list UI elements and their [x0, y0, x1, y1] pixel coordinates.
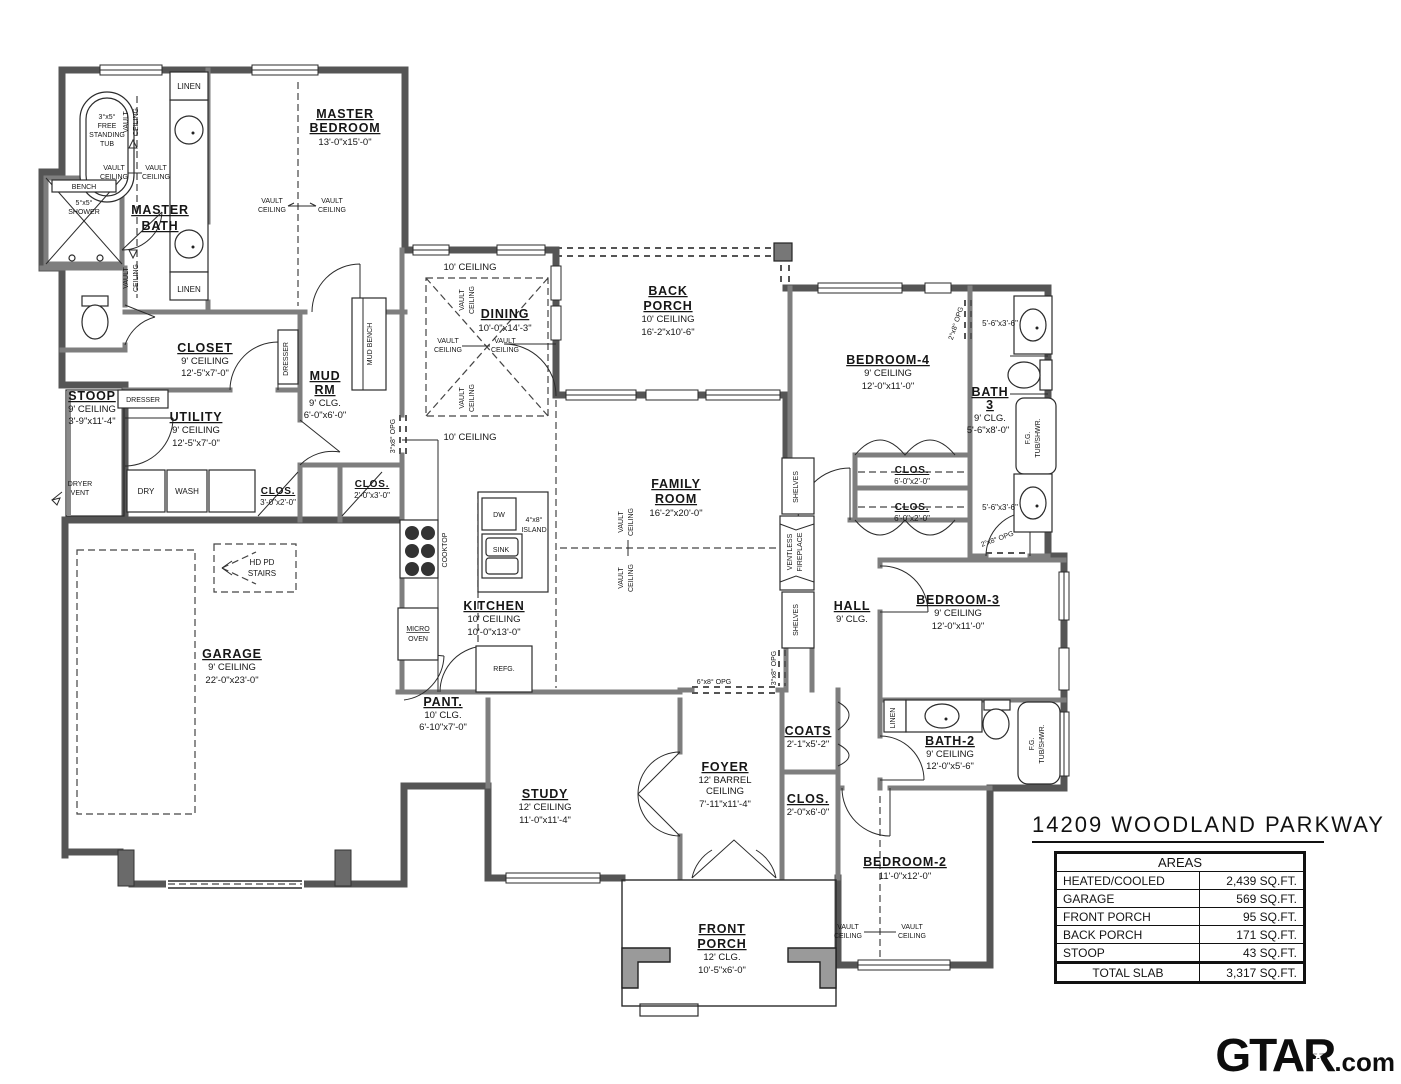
label-master-bath: MASTER	[131, 203, 189, 217]
svg-text:VAULT: VAULT	[123, 111, 130, 133]
svg-text:CEILING: CEILING	[133, 108, 140, 136]
area-value: 171 SQ.FT.	[1199, 926, 1304, 944]
micro-label: MICRO	[406, 626, 430, 633]
vault-label-dining: VAULT CEILING VAULT CEILING VAULT CEILIN…	[434, 286, 519, 412]
svg-text:OVEN: OVEN	[408, 636, 428, 643]
linen-label-bottom: LINEN	[177, 285, 201, 294]
svg-text:12'-0"x5'-6": 12'-0"x5'-6"	[926, 761, 974, 772]
svg-text:VAULT: VAULT	[145, 165, 167, 172]
svg-text:CEILING: CEILING	[258, 207, 286, 214]
svg-text:3'-0"x2'-0": 3'-0"x2'-0"	[260, 498, 296, 507]
svg-text:CEILING: CEILING	[434, 347, 462, 354]
floor-plan-page: MASTER BEDROOM 13'-0"x15'-0" MASTER BATH…	[0, 0, 1401, 1084]
label-bath2: BATH-2	[925, 734, 975, 748]
svg-text:16'-2"x20'-0": 16'-2"x20'-0"	[649, 508, 702, 519]
table-row: FRONT PORCH 95 SQ.FT.	[1056, 908, 1305, 926]
svg-text:12'-5"x7'-0": 12'-5"x7'-0"	[181, 368, 229, 379]
svg-text:9' CEILING: 9' CEILING	[68, 404, 116, 415]
table-row: STOOP 43 SQ.FT.	[1056, 944, 1305, 963]
vault-label-bedroom2: VAULT CEILING VAULT CEILING	[834, 924, 926, 940]
title-block: 14209 WOODLAND PARKWAY AREAS HEATED/COOL…	[1032, 812, 1324, 984]
plan-title: 14209 WOODLAND PARKWAY	[1032, 812, 1324, 843]
svg-text:CEILING: CEILING	[491, 347, 519, 354]
svg-text:9' CEILING: 9' CEILING	[181, 356, 229, 367]
label-coats: COATS	[785, 724, 832, 738]
svg-text:VAULT: VAULT	[618, 511, 625, 533]
svg-text:VAULT: VAULT	[261, 198, 283, 205]
stairs-label: HD PD	[250, 558, 275, 567]
star-icon: ★	[1312, 1048, 1324, 1064]
svg-text:CEILING: CEILING	[628, 564, 635, 592]
svg-text:CEILING: CEILING	[469, 286, 476, 314]
areas-header: AREAS	[1056, 853, 1305, 872]
total-value: 3,317 SQ.FT.	[1199, 963, 1304, 983]
dresser-label-horiz: DRESSER	[126, 397, 160, 404]
label-clos-bed4b: CLOS.	[895, 502, 930, 513]
svg-text:BEDROOM: BEDROOM	[310, 121, 381, 135]
dresser-label-vert: DRESSER	[283, 342, 290, 376]
area-value: 569 SQ.FT.	[1199, 890, 1304, 908]
svg-text:2'-1"x5'-2": 2'-1"x5'-2"	[787, 739, 830, 750]
area-value: 2,439 SQ.FT.	[1199, 872, 1304, 890]
svg-text:PORCH: PORCH	[697, 937, 746, 951]
bath3-fixtures	[1008, 296, 1056, 532]
svg-text:FIREPLACE: FIREPLACE	[797, 532, 804, 571]
svg-text:STANDING: STANDING	[89, 132, 125, 139]
svg-text:9' CEILING: 9' CEILING	[172, 425, 220, 436]
svg-text:VENT: VENT	[71, 490, 90, 497]
opg-2x8-bottom: 2°x8° OPG	[980, 529, 1015, 548]
toilet-master	[82, 296, 108, 339]
svg-text:9' CEILING: 9' CEILING	[934, 608, 982, 619]
svg-text:VAULT: VAULT	[321, 198, 343, 205]
svg-text:2'-0"x3'-0": 2'-0"x3'-0"	[354, 491, 390, 500]
fireplace-label: VENTLESS	[787, 533, 794, 570]
total-label: TOTAL SLAB	[1056, 963, 1200, 983]
svg-text:VAULT: VAULT	[618, 567, 625, 589]
tub-size-label: 3°x5°	[99, 113, 116, 121]
svg-text:VAULT: VAULT	[437, 338, 459, 345]
porch-pillar-right	[788, 948, 836, 988]
kitchen-fixtures	[398, 440, 548, 692]
island-label: 4°x8°	[526, 516, 543, 524]
svg-text:TUB: TUB	[100, 141, 114, 148]
label-hall: HALL	[834, 599, 871, 613]
svg-text:9' CEILING: 9' CEILING	[926, 749, 974, 760]
svg-text:9' CEILING: 9' CEILING	[208, 662, 256, 673]
svg-text:16'-2"x10'-6": 16'-2"x10'-6"	[641, 327, 694, 338]
svg-text:ROOM: ROOM	[655, 492, 697, 506]
label-front-porch: FRONT	[698, 922, 745, 936]
svg-text:PORCH: PORCH	[643, 299, 692, 313]
svg-text:VAULT: VAULT	[103, 165, 125, 172]
svg-text:3'-9"x11'-4": 3'-9"x11'-4"	[68, 416, 115, 427]
gtar-logo-suffix: .com	[1334, 1047, 1395, 1077]
label-study: STUDY	[522, 787, 568, 801]
svg-text:2'-0"x6'-0": 2'-0"x6'-0"	[787, 807, 830, 818]
ceiling10-label-b: 10' CEILING	[443, 432, 496, 443]
label-clos-foyer: CLOS.	[787, 792, 829, 806]
linen-label-top: LINEN	[177, 82, 201, 91]
svg-text:10'-5"x6'-0": 10'-5"x6'-0"	[698, 965, 746, 976]
svg-text:10' CLG.: 10' CLG.	[424, 710, 461, 721]
dw-label: DW	[493, 512, 505, 519]
opg-3x8-mud: 3°x8° OPG	[389, 419, 397, 453]
svg-text:10' CEILING: 10' CEILING	[641, 314, 694, 325]
area-label: GARAGE	[1056, 890, 1200, 908]
label-family-room: FAMILY	[651, 477, 700, 491]
svg-text:12'-5"x7'-0": 12'-5"x7'-0"	[172, 438, 220, 449]
svg-text:CEILING: CEILING	[469, 384, 476, 412]
svg-text:STAIRS: STAIRS	[248, 569, 276, 578]
ceiling10-label-a: 10' CEILING	[443, 262, 496, 273]
svg-text:VAULT: VAULT	[459, 387, 466, 409]
wash-label: WASH	[175, 487, 199, 496]
svg-text:CEILING: CEILING	[706, 786, 744, 797]
svg-text:9' CLG.: 9' CLG.	[836, 614, 868, 625]
porch-pillar-left	[622, 948, 670, 988]
svg-text:5'-6"x8'-0": 5'-6"x8'-0"	[967, 425, 1010, 436]
label-back-porch: BACK	[648, 284, 687, 298]
svg-text:7'-11"x11'-4": 7'-11"x11'-4"	[699, 799, 751, 810]
label-garage: GARAGE	[202, 647, 262, 661]
svg-text:CEILING: CEILING	[100, 174, 128, 181]
svg-text:12'-0"x11'-0": 12'-0"x11'-0"	[862, 381, 914, 392]
label-bedroom4: BEDROOM-4	[846, 353, 930, 367]
linen-label-bath2: LINEN	[890, 708, 897, 729]
svg-text:13'-0"x15'-0": 13'-0"x15'-0"	[318, 137, 371, 148]
svg-text:CEILING: CEILING	[133, 264, 140, 292]
label-stoop: STOOP	[68, 389, 116, 403]
opg-2x8-top: 2°x8° OPG	[947, 306, 965, 341]
svg-text:VAULT: VAULT	[123, 267, 130, 289]
mud-bench-label: MUD BENCH	[367, 323, 374, 365]
label-clos-mud: CLOS.	[355, 479, 390, 490]
svg-text:VAULT: VAULT	[837, 924, 859, 931]
porch-post	[774, 243, 792, 261]
vanity-dims-bottom: 5'-6"x3'-6"	[982, 503, 1018, 512]
opg-3x8-hall: 3°x8° OPG	[770, 651, 778, 685]
svg-text:12' BARREL: 12' BARREL	[698, 775, 751, 786]
svg-text:3: 3	[986, 398, 994, 412]
label-mud-rm: MUD	[310, 369, 341, 383]
svg-text:6'-0"x2'-0": 6'-0"x2'-0"	[894, 477, 930, 486]
area-label: BACK PORCH	[1056, 926, 1200, 944]
svg-text:11'-0"x12'-0": 11'-0"x12'-0"	[879, 871, 931, 882]
svg-text:ISLAND: ISLAND	[521, 527, 546, 534]
svg-text:12'-0"x11'-0": 12'-0"x11'-0"	[932, 621, 984, 632]
shelves-label-lower: SHELVES	[793, 604, 800, 636]
dry-label: DRY	[138, 487, 155, 496]
label-clos-utility: CLOS.	[261, 486, 296, 497]
table-row: GARAGE 569 SQ.FT.	[1056, 890, 1305, 908]
master-vanity	[170, 72, 208, 300]
gtar-logo: GTAR★.com	[1215, 1028, 1395, 1082]
opg-6x8-foyer: 6°x8° OPG	[697, 678, 731, 686]
svg-text:9' CLG.: 9' CLG.	[309, 398, 341, 409]
label-closet: CLOSET	[177, 341, 233, 355]
area-value: 43 SQ.FT.	[1199, 944, 1304, 963]
label-foyer: FOYER	[701, 760, 748, 774]
shower-label: SHOWER	[68, 209, 100, 216]
table-row-total: TOTAL SLAB 3,317 SQ.FT.	[1056, 963, 1305, 983]
svg-text:VAULT: VAULT	[494, 338, 516, 345]
svg-text:CEILING: CEILING	[834, 933, 862, 940]
fg-tub-bath2: F.G.	[1029, 738, 1036, 751]
cooktop-label: COOKTOP	[442, 532, 449, 567]
svg-text:10' CEILING: 10' CEILING	[467, 614, 520, 625]
svg-text:6'-0"x2'-0": 6'-0"x2'-0"	[894, 514, 930, 523]
svg-text:CEILING: CEILING	[318, 207, 346, 214]
svg-text:CEILING: CEILING	[142, 174, 170, 181]
label-bath3: BATH	[972, 385, 1009, 399]
svg-text:10'-0"x13'-0": 10'-0"x13'-0"	[467, 627, 520, 638]
label-kitchen: KITCHEN	[463, 599, 524, 613]
table-row: BACK PORCH 171 SQ.FT.	[1056, 926, 1305, 944]
svg-text:TUB/SHWR.: TUB/SHWR.	[1039, 724, 1046, 763]
vault-label-master-bedroom: VAULT CEILING VAULT CEILING	[258, 198, 346, 214]
label-master-bedroom: MASTER	[316, 107, 374, 121]
shelves-label-upper: SHELVES	[793, 471, 800, 503]
svg-text:9' CEILING: 9' CEILING	[864, 368, 912, 379]
svg-text:CEILING: CEILING	[898, 933, 926, 940]
svg-text:11'-0"x11'-4": 11'-0"x11'-4"	[519, 815, 571, 826]
svg-text:CEILING: CEILING	[628, 508, 635, 536]
svg-text:22'-0"x23'-0": 22'-0"x23'-0"	[205, 675, 258, 686]
svg-text:VAULT: VAULT	[901, 924, 923, 931]
fg-tub-bath3: F.G.	[1025, 432, 1032, 445]
area-value: 95 SQ.FT.	[1199, 908, 1304, 926]
svg-text:12' CLG.: 12' CLG.	[703, 952, 740, 963]
svg-text:5°x5°: 5°x5°	[76, 199, 93, 207]
vault-label-family: VAULT CEILING VAULT CEILING	[618, 508, 635, 592]
svg-text:BATH: BATH	[142, 219, 179, 233]
micro-oven	[398, 608, 438, 660]
refg-label: REFG.	[493, 666, 514, 673]
svg-text:TUB/SHWR.: TUB/SHWR.	[1035, 418, 1042, 457]
areas-table: AREAS HEATED/COOLED 2,439 SQ.FT. GARAGE …	[1054, 851, 1306, 984]
label-dining: DINING	[481, 307, 530, 321]
sink-label: SINK	[493, 547, 510, 554]
svg-text:12' CEILING: 12' CEILING	[518, 802, 571, 813]
svg-text:6'-10"x7'-0": 6'-10"x7'-0"	[419, 722, 467, 733]
label-bedroom3: BEDROOM-3	[916, 593, 1000, 607]
label-clos-bed4a: CLOS.	[895, 465, 930, 476]
bench-label: BENCH	[72, 184, 97, 191]
svg-text:RM: RM	[314, 383, 335, 397]
area-label: HEATED/COOLED	[1056, 872, 1200, 890]
svg-text:VAULT: VAULT	[459, 289, 466, 311]
table-row: HEATED/COOLED 2,439 SQ.FT.	[1056, 872, 1305, 890]
vanity-dims-top: 5'-6"x3'-6"	[982, 319, 1018, 328]
label-bedroom2: BEDROOM-2	[863, 855, 947, 869]
svg-text:FREE: FREE	[98, 123, 117, 130]
svg-text:9' CLG.: 9' CLG.	[974, 413, 1006, 424]
label-pantry: PANT.	[423, 695, 462, 709]
area-label: FRONT PORCH	[1056, 908, 1200, 926]
svg-text:6'-0"x6'-0": 6'-0"x6'-0"	[304, 410, 347, 421]
dryer-vent-label: DRYER	[68, 481, 92, 488]
svg-text:10'-0"x14'-3": 10'-0"x14'-3"	[478, 323, 531, 334]
garage-door	[166, 876, 304, 892]
area-label: STOOP	[1056, 944, 1200, 963]
label-utility: UTILITY	[170, 410, 223, 424]
